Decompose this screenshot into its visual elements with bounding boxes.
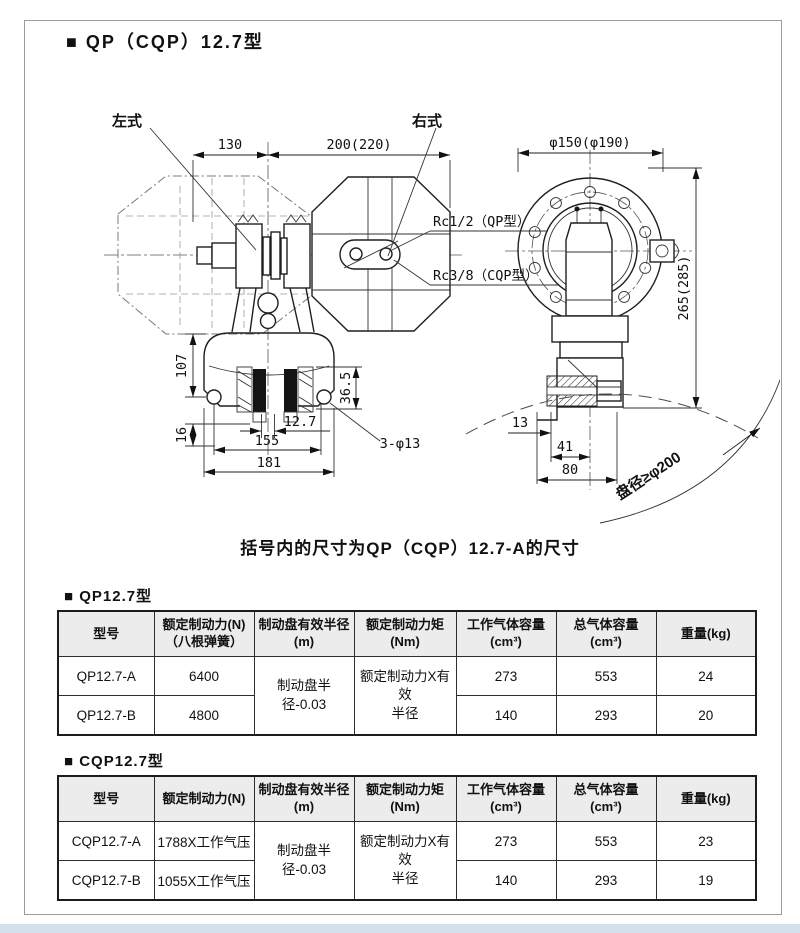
cell-force: 1788X工作气压	[154, 822, 254, 861]
flange-dia-label: φ150(φ190)	[549, 135, 630, 151]
cell-model: CQP12.7-B	[58, 861, 154, 901]
datasheet-page: ■ QP（CQP）12.7型	[0, 0, 800, 933]
dim-41-label: 41	[557, 439, 573, 455]
dim-155-label: 155	[255, 433, 279, 449]
disc-diameter-label: 盘径≥φ200	[612, 448, 684, 503]
flange-side-view	[518, 178, 679, 420]
cell-total-volume: 553	[556, 822, 656, 861]
col-weight: 重量(kg)	[656, 611, 756, 657]
cell-force: 1055X工作气压	[154, 861, 254, 901]
dim-13-label: 13	[512, 415, 528, 431]
bottom-strip	[0, 924, 800, 933]
col-model: 型号	[58, 611, 154, 657]
cell-radius-merged: 制动盘半径-0.03	[254, 657, 354, 736]
col-torque: 额定制动力矩(Nm)	[354, 776, 456, 822]
col-total-volume: 总气体容量(cm³)	[556, 776, 656, 822]
cell-work-volume: 273	[456, 822, 556, 861]
header-row: 型号 额定制动力(N)（八根弹簧） 制动盘有效半径(m) 额定制动力矩(Nm) …	[58, 611, 756, 657]
cell-total-volume: 553	[556, 657, 656, 696]
cell-force: 4800	[154, 696, 254, 736]
technical-drawing: 左式 右式 130 200(220) Rc1/2（QP型） Rc3/8（CQP型…	[90, 95, 780, 535]
page-title: ■ QP（CQP）12.7型	[66, 28, 264, 54]
cell-weight: 23	[656, 822, 756, 861]
holes-3-phi13-label: 3-φ13	[380, 436, 421, 452]
cell-torque-merged: 额定制动力X有效半径	[354, 822, 456, 901]
cqp-spec-table: 型号 额定制动力(N) 制动盘有效半径(m) 额定制动力矩(Nm) 工作气体容量…	[57, 775, 757, 901]
left-style-label: 左式	[111, 112, 142, 130]
col-radius: 制动盘有效半径(m)	[254, 776, 354, 822]
cqp-table-title: ■ CQP12.7型	[64, 750, 164, 771]
col-force: 额定制动力(N)（八根弹簧）	[154, 611, 254, 657]
dim-107-label: 107	[174, 354, 190, 378]
dim-80-label: 80	[562, 462, 578, 478]
cell-force: 6400	[154, 657, 254, 696]
cell-work-volume: 140	[456, 861, 556, 901]
col-model: 型号	[58, 776, 154, 822]
col-total-volume: 总气体容量(cm³)	[556, 611, 656, 657]
cell-weight: 19	[656, 861, 756, 901]
dim-265-285-label: 265(285)	[676, 255, 692, 320]
header-row: 型号 额定制动力(N) 制动盘有效半径(m) 额定制动力矩(Nm) 工作气体容量…	[58, 776, 756, 822]
col-force: 额定制动力(N)	[154, 776, 254, 822]
cell-total-volume: 293	[556, 861, 656, 901]
cell-model: QP12.7-B	[58, 696, 154, 736]
qp-table-title: ■ QP12.7型	[64, 585, 152, 606]
cell-work-volume: 273	[456, 657, 556, 696]
right-style-label: 右式	[412, 112, 442, 130]
dim-36-5-label: 36.5	[338, 372, 354, 405]
dim-16-label: 16	[174, 427, 190, 443]
col-weight: 重量(kg)	[656, 776, 756, 822]
dimension-note: 括号内的尺寸为QP（CQP）12.7-A的尺寸	[40, 534, 780, 559]
cell-weight: 20	[656, 696, 756, 736]
cell-model: QP12.7-A	[58, 657, 154, 696]
right-mount-body-view	[312, 177, 450, 331]
col-torque: 额定制动力矩(Nm)	[354, 611, 456, 657]
col-work-volume: 工作气体容量(cm³)	[456, 776, 556, 822]
rc-qp-label: Rc1/2（QP型）	[433, 214, 530, 230]
col-work-volume: 工作气体容量(cm³)	[456, 611, 556, 657]
cell-torque-merged: 额定制动力X有效半径	[354, 657, 456, 736]
cell-radius-merged: 制动盘半径-0.03	[254, 822, 354, 901]
qp-spec-table: 型号 额定制动力(N)（八根弹簧） 制动盘有效半径(m) 额定制动力矩(Nm) …	[57, 610, 757, 736]
cell-work-volume: 140	[456, 696, 556, 736]
rc-cqp-label: Rc3/8（CQP型）	[433, 268, 539, 284]
cell-weight: 24	[656, 657, 756, 696]
col-radius: 制动盘有效半径(m)	[254, 611, 354, 657]
cell-model: CQP12.7-A	[58, 822, 154, 861]
dim-181-label: 181	[257, 455, 281, 471]
table-row: QP12.7-A 6400 制动盘半径-0.03 额定制动力X有效半径 273 …	[58, 657, 756, 696]
dim-12-7-label: 12.7	[284, 414, 317, 430]
table-row: CQP12.7-A 1788X工作气压 制动盘半径-0.03 额定制动力X有效半…	[58, 822, 756, 861]
dim-200-220-label: 200(220)	[326, 137, 391, 153]
cell-total-volume: 293	[556, 696, 656, 736]
dim-130-label: 130	[218, 137, 242, 153]
